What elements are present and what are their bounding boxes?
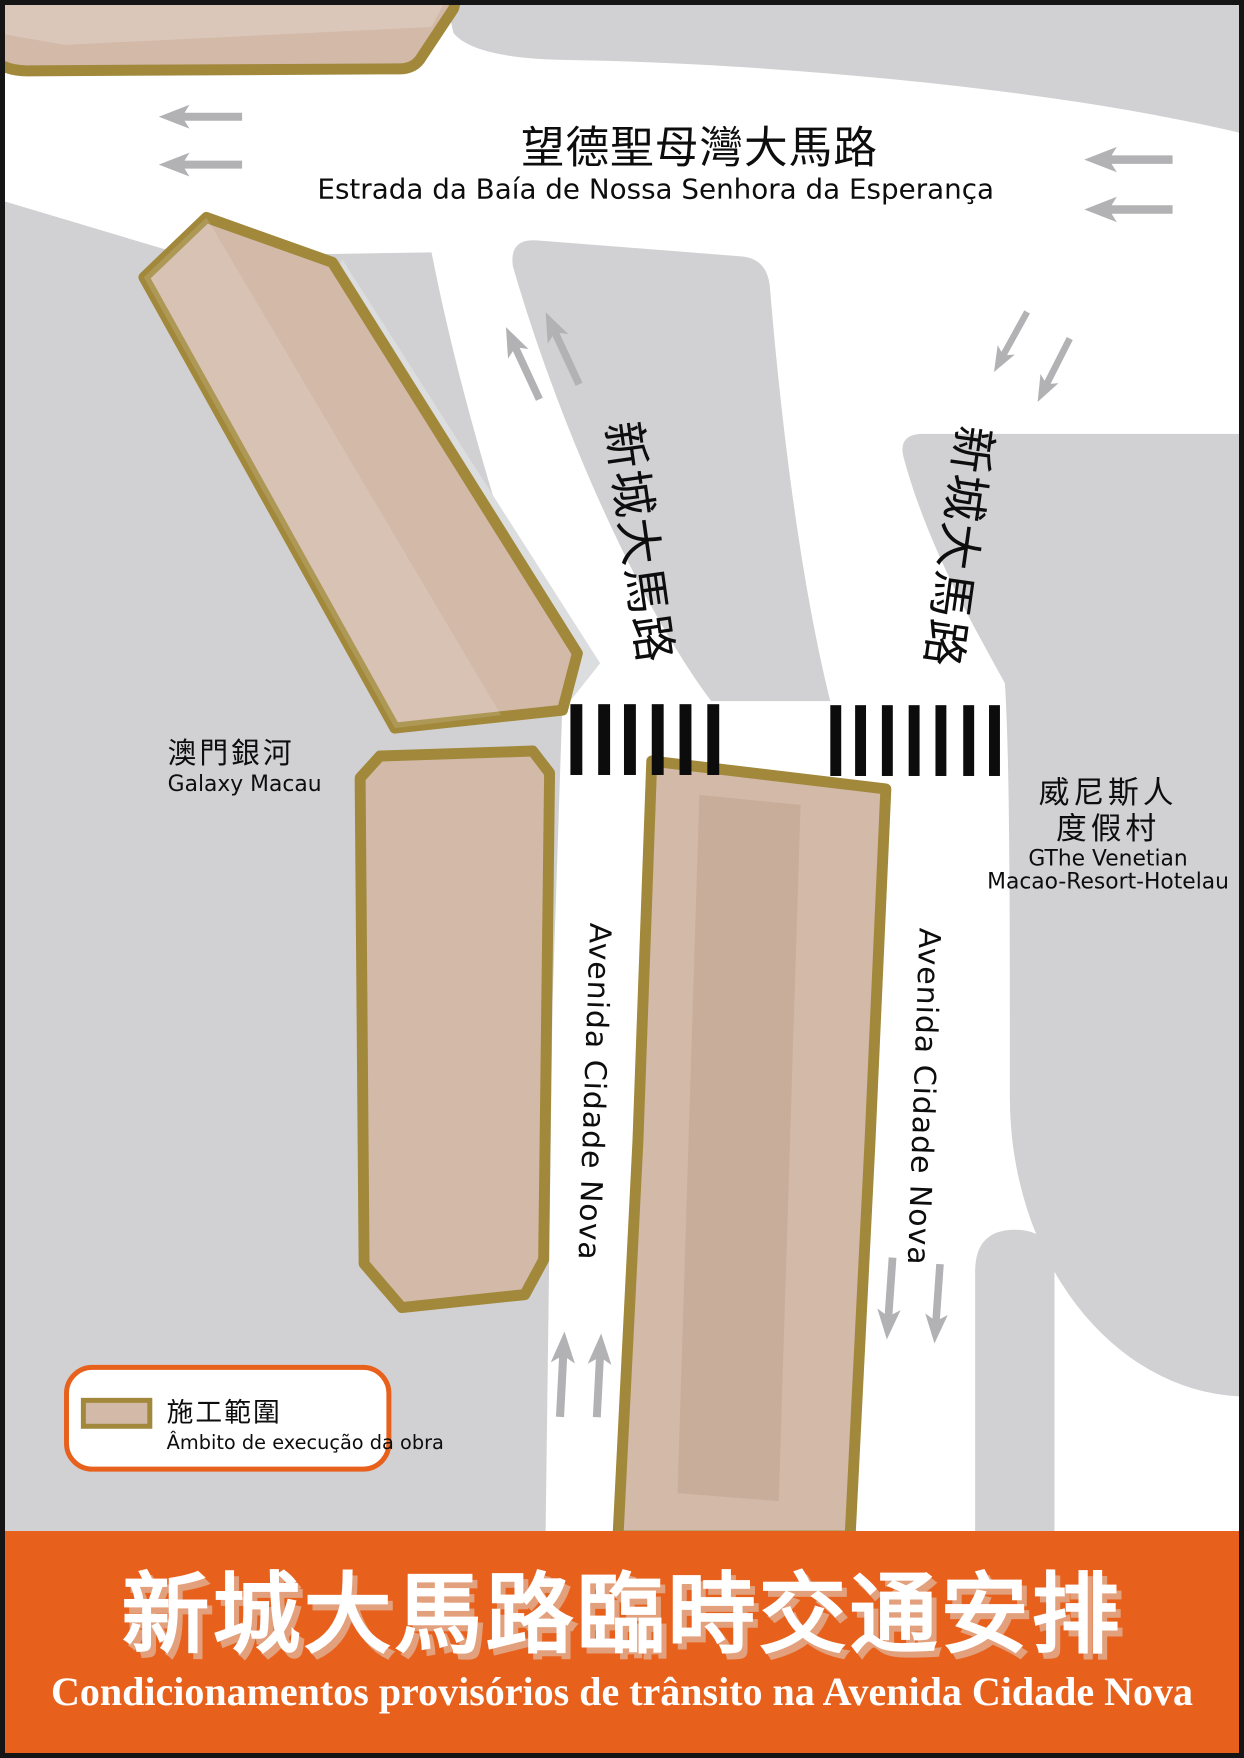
venetian-label-en-line2: Macao-Resort-Hotelau — [987, 870, 1229, 895]
venetian-label-zh-line1: 威尼斯人 — [1039, 775, 1178, 811]
crosswalk-stripe — [882, 705, 893, 776]
crosswalk-stripe — [598, 704, 610, 775]
traffic-notice-poster: 望德聖母灣大馬路 Estrada da Baía de Nossa Senhor… — [0, 0, 1244, 1758]
crosswalk-stripe — [989, 705, 1000, 776]
banner-title-zh: 新城大馬路臨時交通安排 — [121, 1569, 1122, 1661]
construction-zone-swatch — [83, 1400, 149, 1426]
legend: 施工範圍 Âmbito de execução da obra — [67, 1367, 444, 1469]
crosswalk-stripe — [707, 704, 719, 775]
crosswalk-stripe — [652, 704, 664, 775]
venetian-label-zh-line2: 度假村 — [1056, 811, 1160, 847]
galaxy-macau-label-zh: 澳門銀河 — [168, 736, 295, 770]
crosswalk-stripe — [855, 705, 866, 776]
legend-label-zh: 施工範圍 — [167, 1397, 282, 1428]
crosswalk-stripe — [935, 705, 946, 776]
traffic-map: 望德聖母灣大馬路 Estrada da Baía de Nossa Senhor… — [5, 5, 1239, 1531]
title-banner: 新城大馬路臨時交通安排 Condicionamentos provisórios… — [5, 1531, 1239, 1753]
banner-subtitle-pt: Condicionamentos provisórios de trânsito… — [51, 1668, 1193, 1715]
top-road-name-zh: 望德聖母灣大馬路 — [521, 122, 878, 173]
legend-label-pt: Âmbito de execução da obra — [167, 1430, 444, 1454]
median-tongue — [975, 1230, 1054, 1531]
venetian-label-en-line1: GThe Venetian — [1028, 847, 1187, 872]
galaxy-macau-label-en: Galaxy Macau — [168, 772, 322, 797]
crosswalk-stripe — [963, 705, 974, 776]
crosswalk-stripe — [570, 704, 582, 775]
construction-zone-lower-left — [360, 751, 549, 1308]
crosswalk-stripe — [680, 704, 692, 775]
crosswalk-stripe — [830, 705, 841, 776]
crosswalk-stripe — [909, 705, 920, 776]
crosswalk-stripe — [624, 704, 636, 775]
top-road-name-pt: Estrada da Baía de Nossa Senhora da Espe… — [317, 172, 994, 205]
